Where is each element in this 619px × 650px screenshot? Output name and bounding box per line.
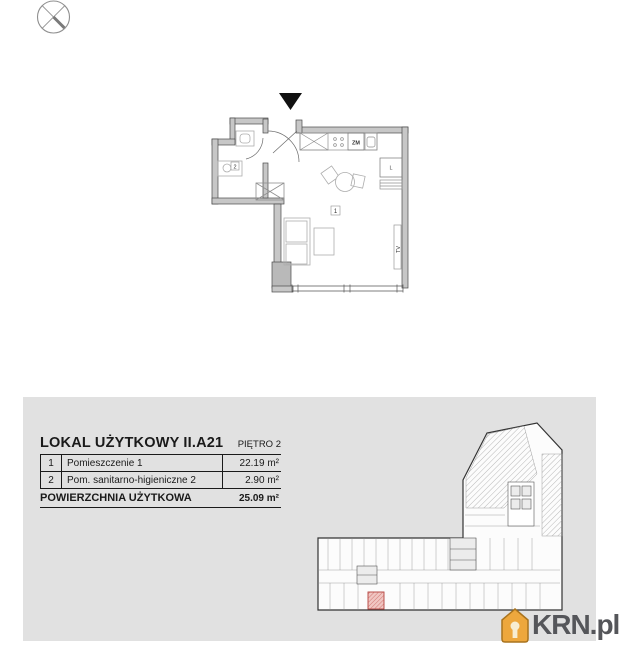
row-number: 1 (40, 455, 62, 471)
krn-logo: KRN.pl (500, 606, 619, 644)
table-footer: POWIERZCHNIA UŻYTKOWA 25.09 m² (40, 489, 281, 508)
row-name: Pomieszczenie 1 (62, 455, 222, 471)
table-row: 1 Pomieszczenie 1 22.19 m² (40, 455, 281, 472)
stove-icon (334, 138, 337, 141)
unit-title: LOKAL UŻYTKOWY II.A21 (40, 435, 223, 451)
unit-floor-plan: ZM L TV 1 2 (180, 85, 420, 300)
tv-label: TV (396, 246, 402, 253)
hatched-area (542, 454, 562, 536)
unit-location-highlight (368, 592, 384, 609)
floorplan-page: ZM L TV 1 2 (0, 0, 619, 650)
row-area: 22.19 m² (222, 455, 281, 471)
floor-label: PIĘTRO 2 (238, 439, 281, 451)
fridge-label: L (389, 166, 392, 172)
total-area: 25.09 m² (239, 493, 281, 504)
window-wall (292, 285, 403, 293)
sofa-icon (284, 218, 310, 265)
entrance-arrow-icon (279, 93, 302, 110)
north-compass-icon (36, 0, 72, 36)
krn-house-icon (500, 607, 530, 644)
krn-logo-text: KRN.pl (532, 606, 619, 644)
row-name: Pom. sanitarno-higieniczne 2 (62, 472, 222, 488)
row-area: 2.90 m² (222, 472, 281, 488)
total-label: POWIERZCHNIA UŻYTKOWA (40, 492, 192, 504)
dishwasher-label: ZM (352, 141, 360, 147)
row-number: 2 (40, 472, 62, 488)
coffee-table-icon (314, 228, 334, 255)
unit-info-table: LOKAL UŻYTKOWY II.A21 PIĘTRO 2 1 Pomiesz… (40, 435, 281, 508)
room2-label: 2 (233, 165, 236, 171)
toilet-icon (236, 131, 254, 146)
table-header: LOKAL UŻYTKOWY II.A21 PIĘTRO 2 (40, 435, 281, 455)
building-overview-map (300, 420, 600, 625)
table-row: 2 Pom. sanitarno-higieniczne 2 2.90 m² (40, 472, 281, 489)
info-panel: LOKAL UŻYTKOWY II.A21 PIĘTRO 2 1 Pomiesz… (23, 397, 596, 641)
sink-icon (367, 137, 375, 147)
